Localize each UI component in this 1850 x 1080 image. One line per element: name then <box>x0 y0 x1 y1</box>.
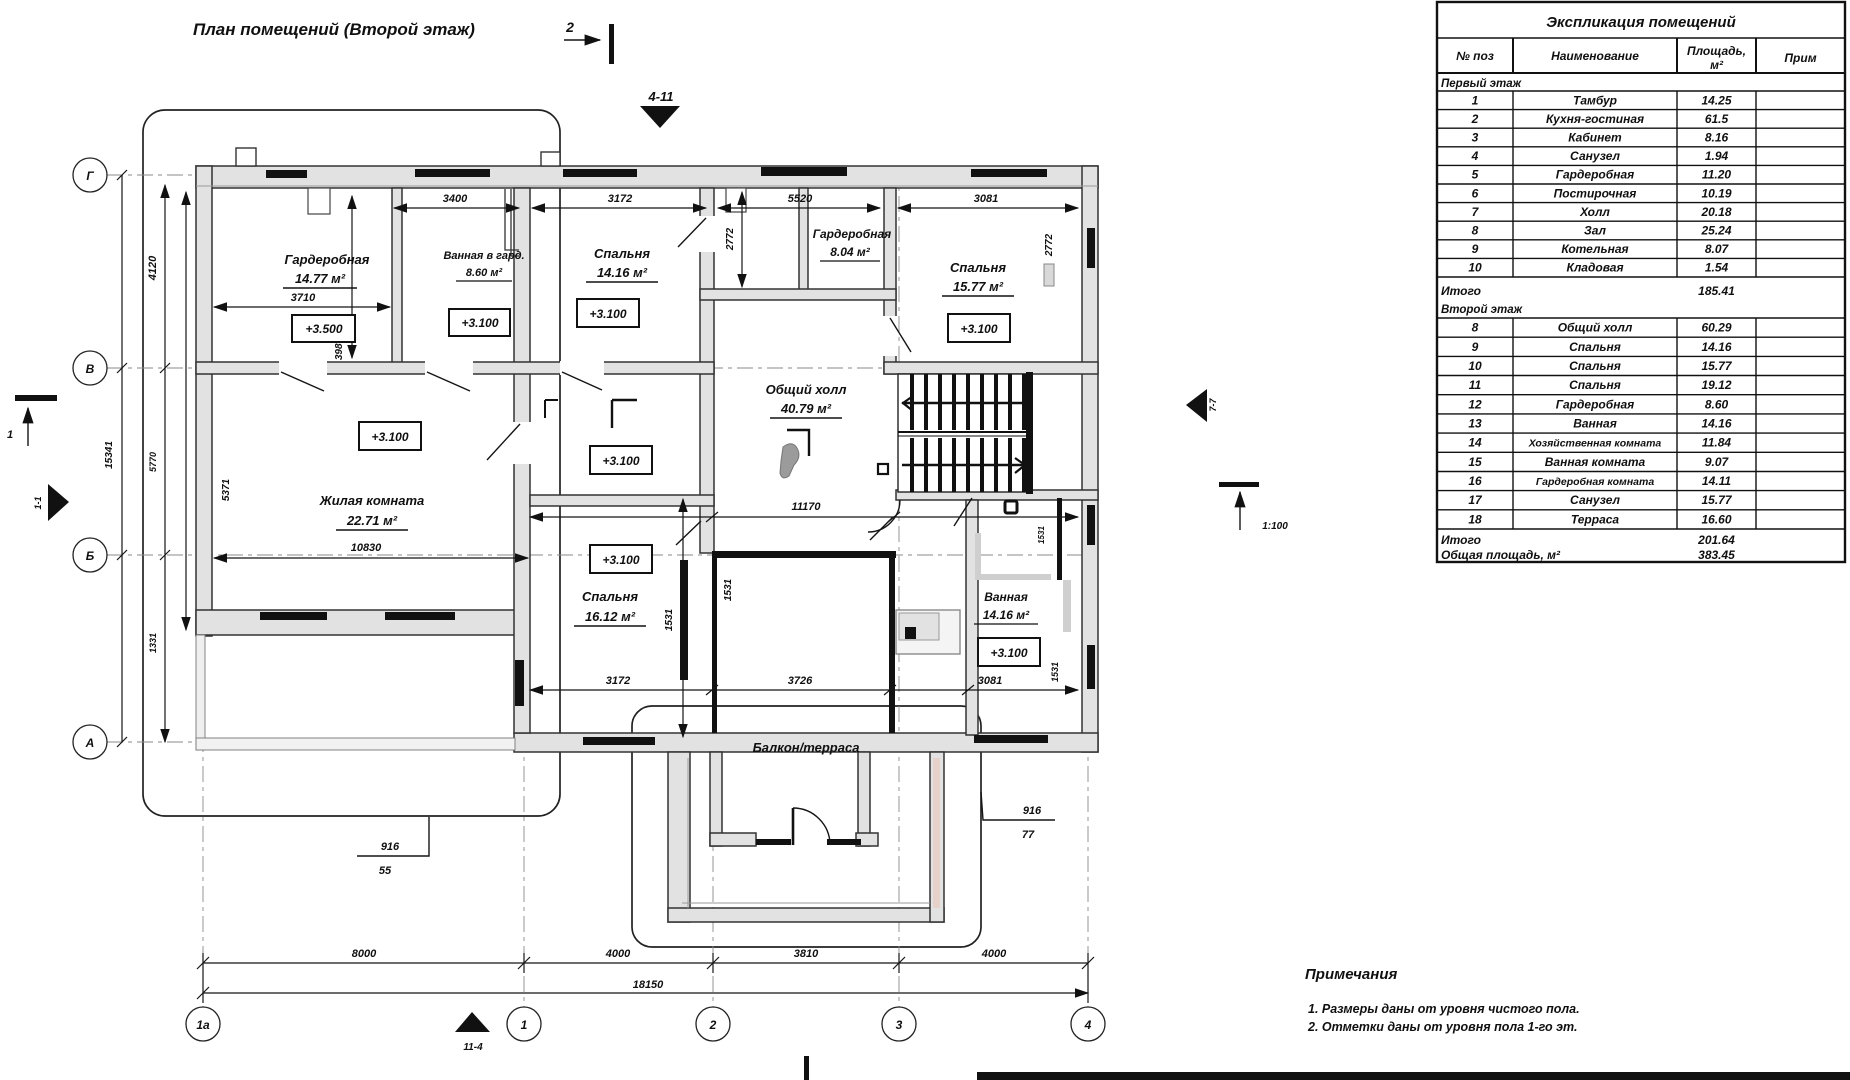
svg-text:2772: 2772 <box>1044 233 1055 257</box>
svg-text:+3.100: +3.100 <box>960 322 997 336</box>
svg-text:14.16: 14.16 <box>1701 417 1731 431</box>
svg-text:3172: 3172 <box>606 675 630 687</box>
svg-text:55: 55 <box>379 865 392 877</box>
svg-text:17: 17 <box>1468 493 1483 507</box>
svg-text:22.71 м²: 22.71 м² <box>346 513 398 528</box>
svg-text:Гардеробная: Гардеробная <box>1556 397 1634 411</box>
svg-text:3172: 3172 <box>608 193 632 205</box>
svg-text:Жилая комната: Жилая комната <box>319 493 425 508</box>
svg-text:12: 12 <box>1468 397 1482 411</box>
svg-text:14.77 м²: 14.77 м² <box>295 271 346 286</box>
svg-text:3: 3 <box>1472 131 1479 145</box>
svg-text:10830: 10830 <box>351 542 382 554</box>
svg-text:Б: Б <box>86 549 95 563</box>
svg-text:Тамбур: Тамбур <box>1573 93 1617 107</box>
svg-text:4: 4 <box>1084 1018 1092 1032</box>
svg-text:4120: 4120 <box>147 255 159 281</box>
svg-text:8: 8 <box>1472 224 1479 238</box>
svg-text:Ванная комната: Ванная комната <box>1545 455 1646 469</box>
svg-text:185.41: 185.41 <box>1698 284 1735 298</box>
svg-text:19.12: 19.12 <box>1701 378 1731 392</box>
svg-text:3081: 3081 <box>974 193 998 205</box>
svg-text:3: 3 <box>896 1018 903 1032</box>
svg-text:9: 9 <box>1472 340 1479 354</box>
svg-text:1: 1 <box>7 429 13 441</box>
svg-text:4000: 4000 <box>605 948 631 960</box>
svg-text:Гардеробная: Гардеробная <box>1556 168 1634 182</box>
svg-text:8000: 8000 <box>352 948 377 960</box>
svg-text:Кухня-гостиная: Кухня-гостиная <box>1546 112 1644 126</box>
svg-text:2: 2 <box>565 19 574 35</box>
svg-text:2. Отметки даны от уровня пола: 2. Отметки даны от уровня пола 1-го эт. <box>1307 1020 1577 1034</box>
svg-text:Ванная в гард.: Ванная в гард. <box>443 250 524 262</box>
svg-text:+3.100: +3.100 <box>371 430 408 444</box>
svg-text:14.16 м²: 14.16 м² <box>983 608 1030 622</box>
svg-text:1531: 1531 <box>1037 526 1046 544</box>
svg-text:1:100: 1:100 <box>1262 521 1288 532</box>
svg-text:61.5: 61.5 <box>1705 112 1729 126</box>
svg-text:8.07: 8.07 <box>1705 242 1730 256</box>
svg-text:8.60: 8.60 <box>1705 397 1729 411</box>
svg-text:Ванная: Ванная <box>984 590 1028 604</box>
svg-text:Гардеробная комната: Гардеробная комната <box>1536 476 1655 488</box>
svg-text:1: 1 <box>521 1018 528 1032</box>
svg-text:5371: 5371 <box>221 478 232 501</box>
svg-text:5520: 5520 <box>788 193 813 205</box>
svg-text:3810: 3810 <box>794 948 819 960</box>
svg-text:А: А <box>85 736 95 750</box>
svg-text:Итого: Итого <box>1441 284 1481 298</box>
svg-text:14.25: 14.25 <box>1701 93 1731 107</box>
svg-text:Спальня: Спальня <box>594 246 650 261</box>
svg-text:3081: 3081 <box>978 675 1002 687</box>
svg-text:1-1: 1-1 <box>33 496 43 509</box>
svg-text:План помещений (Второй этаж): План помещений (Второй этаж) <box>193 20 475 39</box>
svg-text:Санузел: Санузел <box>1570 149 1620 163</box>
svg-text:9: 9 <box>1472 242 1479 256</box>
svg-text:Холл: Холл <box>1579 205 1610 219</box>
svg-text:8: 8 <box>1472 321 1479 335</box>
svg-text:Спальня: Спальня <box>1569 359 1621 373</box>
svg-text:Кабинет: Кабинет <box>1568 131 1622 145</box>
svg-text:1531: 1531 <box>723 578 734 601</box>
svg-text:383.45: 383.45 <box>1698 548 1735 562</box>
svg-text:Экспликация помещений: Экспликация помещений <box>1546 14 1736 31</box>
svg-text:Первый этаж: Первый этаж <box>1441 78 1522 90</box>
svg-text:16.60: 16.60 <box>1701 512 1731 526</box>
svg-text:Постирочная: Постирочная <box>1554 186 1637 200</box>
svg-text:В: В <box>86 362 95 376</box>
svg-text:18150: 18150 <box>633 979 664 991</box>
svg-text:2: 2 <box>1471 112 1479 126</box>
svg-text:Гардеробная: Гардеробная <box>813 227 891 241</box>
svg-text:Хозяйственная комната: Хозяйственная комната <box>1528 438 1662 450</box>
svg-text:+3.100: +3.100 <box>602 553 639 567</box>
svg-text:2: 2 <box>709 1018 717 1032</box>
svg-text:4000: 4000 <box>981 948 1007 960</box>
svg-text:Прим: Прим <box>1784 51 1816 65</box>
svg-text:Второй этаж: Второй этаж <box>1441 304 1523 316</box>
svg-text:8.04 м²: 8.04 м² <box>830 245 871 259</box>
svg-text:4: 4 <box>1471 149 1479 163</box>
svg-text:Спальня: Спальня <box>1569 340 1621 354</box>
svg-text:Зал: Зал <box>1584 224 1607 238</box>
svg-text:14.16 м²: 14.16 м² <box>597 265 648 280</box>
svg-text:+3.100: +3.100 <box>461 316 498 330</box>
svg-text:5: 5 <box>1472 168 1479 182</box>
svg-text:15.77: 15.77 <box>1701 359 1732 373</box>
svg-text:Котельная: Котельная <box>1561 242 1628 256</box>
svg-text:+3.100: +3.100 <box>602 454 639 468</box>
svg-text:3400: 3400 <box>443 193 468 205</box>
svg-text:8.60 м²: 8.60 м² <box>466 267 503 279</box>
svg-text:11.84: 11.84 <box>1702 436 1731 450</box>
svg-text:Балкон/терраса: Балкон/терраса <box>753 740 860 755</box>
svg-text:1а: 1а <box>196 1018 210 1032</box>
svg-text:4-11: 4-11 <box>647 89 673 104</box>
svg-text:1331: 1331 <box>148 633 158 653</box>
svg-text:+3.100: +3.100 <box>990 646 1027 660</box>
svg-text:Г: Г <box>86 169 94 183</box>
svg-text:Санузел: Санузел <box>1570 493 1620 507</box>
svg-text:10.19: 10.19 <box>1701 186 1731 200</box>
svg-text:3726: 3726 <box>788 675 813 687</box>
svg-text:18: 18 <box>1468 512 1482 526</box>
svg-text:40.79 м²: 40.79 м² <box>780 401 832 416</box>
svg-text:14: 14 <box>1468 436 1482 450</box>
svg-text:+3.100: +3.100 <box>589 307 626 321</box>
svg-text:7-7: 7-7 <box>1208 398 1218 412</box>
svg-text:1. Размеры даны от уровня чист: 1. Размеры даны от уровня чистого пола. <box>1308 1002 1580 1016</box>
svg-text:14.16: 14.16 <box>1701 340 1731 354</box>
svg-text:77: 77 <box>1022 829 1035 841</box>
svg-text:201.64: 201.64 <box>1697 533 1735 547</box>
svg-text:11-4: 11-4 <box>463 1042 483 1053</box>
svg-text:15: 15 <box>1468 455 1482 469</box>
svg-text:Спальня: Спальня <box>950 260 1006 275</box>
svg-text:16: 16 <box>1468 474 1482 488</box>
svg-text:Ванная: Ванная <box>1573 417 1617 431</box>
svg-text:11: 11 <box>1469 378 1482 392</box>
svg-text:25.24: 25.24 <box>1700 224 1731 238</box>
svg-text:15.77 м²: 15.77 м² <box>953 279 1004 294</box>
svg-text:Общий холл: Общий холл <box>1558 321 1633 335</box>
svg-text:2772: 2772 <box>725 227 736 251</box>
svg-text:1: 1 <box>1472 93 1479 107</box>
svg-text:8.16: 8.16 <box>1705 131 1729 145</box>
svg-text:15.77: 15.77 <box>1701 493 1732 507</box>
svg-text:6: 6 <box>1472 186 1479 200</box>
svg-text:Площадь,: Площадь, <box>1687 44 1746 58</box>
svg-text:11.20: 11.20 <box>1702 168 1731 182</box>
svg-text:Примечания: Примечания <box>1305 966 1397 983</box>
svg-text:1.94: 1.94 <box>1705 149 1729 163</box>
svg-text:+3.500: +3.500 <box>305 322 342 336</box>
svg-text:Терраса: Терраса <box>1571 512 1620 526</box>
svg-text:1531: 1531 <box>1050 662 1060 682</box>
svg-text:м²: м² <box>1710 58 1724 72</box>
svg-text:Кладовая: Кладовая <box>1566 261 1623 275</box>
svg-text:60.29: 60.29 <box>1701 321 1731 335</box>
svg-text:14.11: 14.11 <box>1702 474 1731 488</box>
svg-text:3710: 3710 <box>291 292 316 304</box>
svg-text:Гардеробная: Гардеробная <box>285 252 370 267</box>
svg-text:11170: 11170 <box>792 501 822 513</box>
svg-text:Спальня: Спальня <box>582 589 638 604</box>
svg-text:1.54: 1.54 <box>1705 261 1729 275</box>
svg-text:1531: 1531 <box>664 608 675 631</box>
svg-text:16.12 м²: 16.12 м² <box>585 609 636 624</box>
svg-text:9.07: 9.07 <box>1705 455 1730 469</box>
svg-text:13: 13 <box>1468 417 1482 431</box>
svg-text:10: 10 <box>1468 359 1482 373</box>
svg-text:Итого: Итого <box>1441 533 1481 547</box>
svg-text:Общий холл: Общий холл <box>766 382 847 397</box>
svg-text:10: 10 <box>1468 261 1482 275</box>
svg-text:15341: 15341 <box>104 441 115 469</box>
svg-text:20.18: 20.18 <box>1700 205 1731 219</box>
svg-text:№ поз: № поз <box>1456 49 1494 63</box>
svg-text:Наименование: Наименование <box>1551 49 1639 63</box>
svg-text:Спальня: Спальня <box>1569 378 1621 392</box>
svg-text:916: 916 <box>381 841 400 853</box>
svg-text:5770: 5770 <box>148 452 158 472</box>
svg-text:916: 916 <box>1023 805 1042 817</box>
svg-text:Общая площадь, м²: Общая площадь, м² <box>1441 548 1561 562</box>
